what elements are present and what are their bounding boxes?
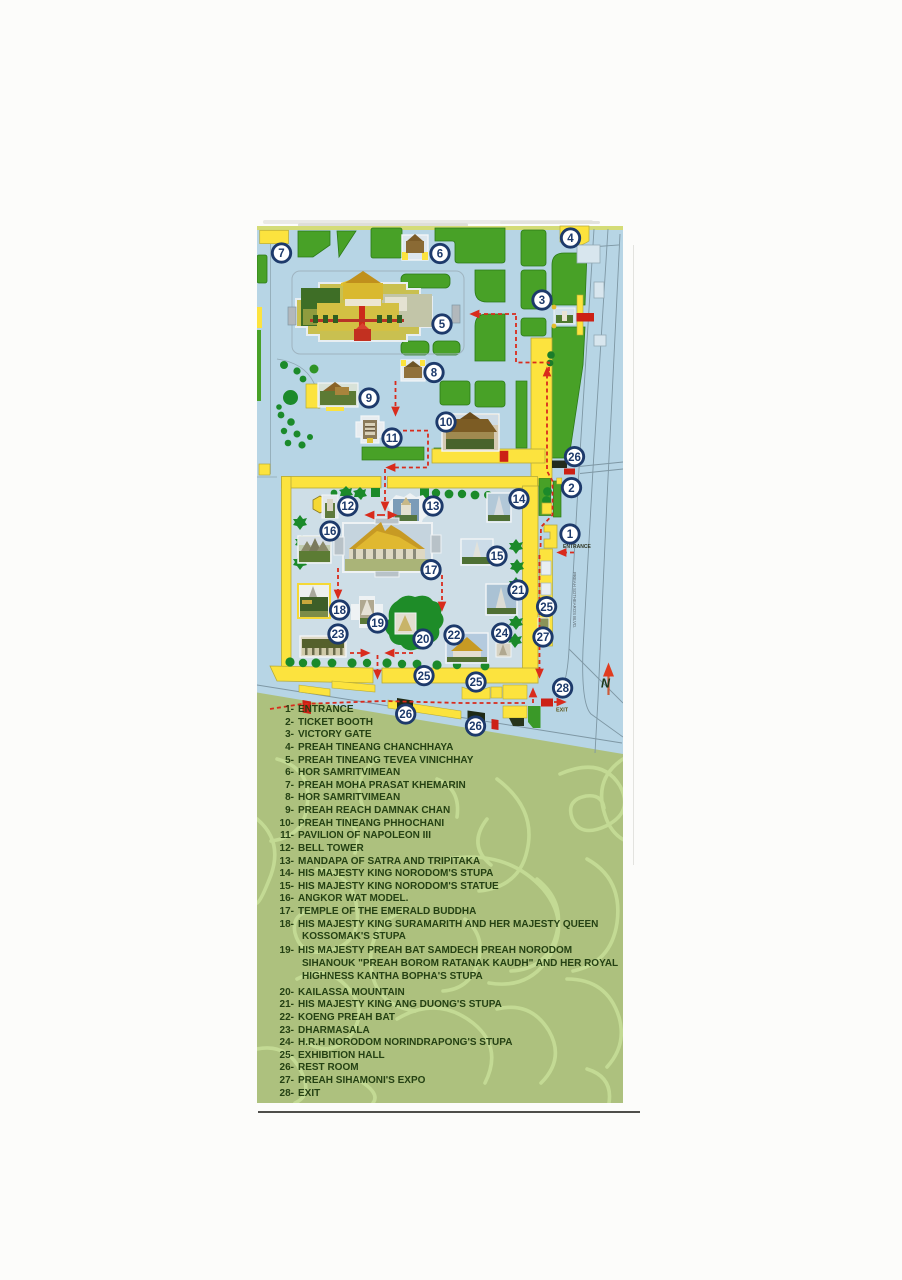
svg-text:13: 13 (427, 501, 440, 513)
svg-text:5: 5 (439, 319, 446, 331)
svg-text:9: 9 (366, 393, 372, 405)
svg-text:24: 24 (495, 628, 508, 640)
svg-text:15: 15 (491, 551, 504, 563)
svg-text:N: N (601, 677, 611, 691)
svg-text:1: 1 (567, 529, 574, 541)
svg-text:27: 27 (537, 632, 550, 644)
svg-text:20: 20 (417, 634, 430, 646)
svg-text:12: 12 (341, 501, 354, 513)
svg-text:2: 2 (568, 483, 574, 495)
svg-text:25: 25 (470, 677, 483, 689)
svg-text:6: 6 (437, 249, 443, 261)
svg-text:28: 28 (556, 683, 569, 695)
svg-text:ENTRANCE: ENTRANCE (563, 544, 591, 550)
svg-text:23: 23 (332, 629, 345, 641)
svg-text:26: 26 (568, 452, 581, 464)
svg-text:18: 18 (333, 605, 346, 617)
svg-text:4: 4 (567, 233, 574, 245)
svg-text:PREAH SOTHEAROS BLVD.: PREAH SOTHEAROS BLVD. (572, 572, 577, 628)
svg-text:3: 3 (539, 295, 545, 307)
svg-text:25: 25 (418, 671, 431, 683)
svg-text:25: 25 (540, 602, 553, 614)
svg-text:21: 21 (512, 585, 525, 597)
svg-text:19: 19 (371, 618, 384, 630)
svg-text:11: 11 (386, 433, 399, 445)
svg-text:10: 10 (440, 417, 453, 429)
svg-text:7: 7 (278, 248, 284, 260)
svg-text:14: 14 (513, 494, 526, 506)
svg-text:8: 8 (431, 368, 438, 380)
svg-text:22: 22 (448, 630, 461, 642)
svg-text:17: 17 (425, 565, 438, 577)
svg-text:16: 16 (324, 526, 337, 538)
